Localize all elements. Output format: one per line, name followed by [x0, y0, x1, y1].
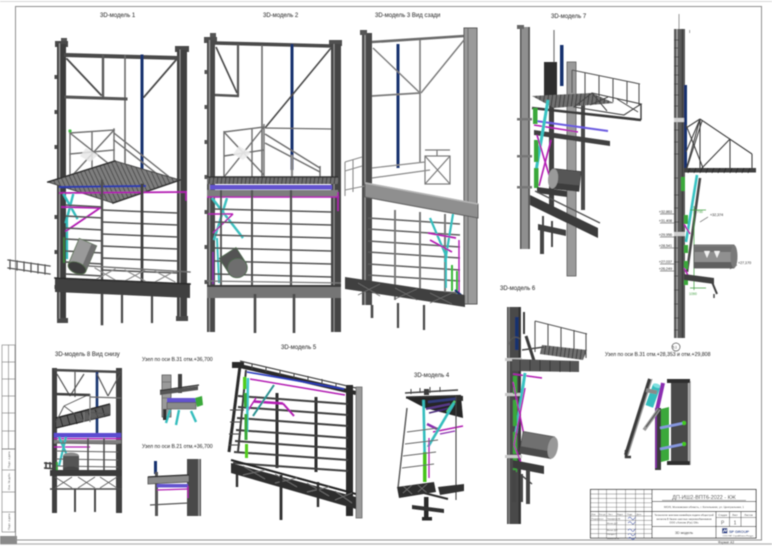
- svg-text:Изм: Изм: [592, 514, 597, 516]
- svg-text:+27,037: +27,037: [659, 260, 672, 264]
- svg-text:Подп. и дата: Подп. и дата: [7, 451, 11, 468]
- svg-text:3D-модель 8 Вид снизу: 3D-модель 8 Вид снизу: [55, 352, 120, 358]
- svg-text:+28,541: +28,541: [659, 244, 672, 248]
- svg-text:Подп. и дата: Подп. и дата: [7, 513, 11, 530]
- svg-text:+29,956: +29,956: [659, 233, 672, 237]
- svg-text:+31,408: +31,408: [659, 219, 672, 223]
- svg-text:+27,170: +27,170: [738, 261, 751, 265]
- svg-text:3D-модель 4: 3D-модель 4: [414, 373, 450, 379]
- svg-text:ООО «Холсим (Рус) СМ»: ООО «Холсим (Рус) СМ»: [669, 522, 699, 525]
- svg-text:ООО ПКГ СтройИнвестРесурс: ООО ПКГ СтройИнвестРесурс: [723, 534, 755, 537]
- svg-text:Кол.уч: Кол.уч: [599, 514, 606, 516]
- svg-text:Лист: Лист: [732, 513, 738, 517]
- svg-text:1090: 1090: [689, 292, 697, 296]
- svg-text:Тимофеев М.: Тимофеев М.: [607, 518, 621, 521]
- svg-text:Рябцев П.: Рябцев П.: [607, 534, 618, 536]
- svg-text:1: 1: [734, 521, 737, 527]
- svg-text:+26,249: +26,249: [659, 267, 672, 271]
- svg-text:3D-модель 1: 3D-модель 1: [100, 13, 136, 19]
- svg-text:Ивлев Д.Р.: Ивлев Д.Р.: [607, 523, 618, 525]
- svg-text:Узел по оси В.31 отм.+36,700: Узел по оси В.31 отм.+36,700: [142, 357, 213, 363]
- svg-text:Ивлев Д.Р.: Ивлев Д.Р.: [607, 530, 618, 532]
- svg-text:3D-модель 7: 3D-модель 7: [551, 14, 587, 20]
- svg-text:SP GROUP: SP GROUP: [729, 530, 749, 534]
- svg-text:МО/6, Московская область, г. К: МО/6, Московская область, г. Котельники,…: [664, 505, 744, 509]
- svg-text:+32,374: +32,374: [710, 213, 723, 217]
- svg-text:Дата: Дата: [637, 514, 643, 516]
- svg-text:Шмайлов А.: Шмайлов А.: [607, 537, 620, 540]
- svg-text:Лист: Лист: [608, 514, 613, 516]
- svg-text:Стадия: Стадия: [718, 513, 727, 517]
- svg-text:Узел по оси В.21 отм.+36,700: Узел по оси В.21 отм.+36,700: [142, 444, 213, 450]
- svg-text:Формат А3: Формат А3: [718, 541, 734, 545]
- svg-text:3D-модель 3 Вид сзади: 3D-модель 3 Вид сзади: [375, 13, 440, 19]
- svg-text:3D-модель 6: 3D-модель 6: [500, 286, 536, 292]
- svg-text:Подп: Подп: [627, 514, 633, 516]
- svg-text:5.1: 5.1: [673, 346, 678, 350]
- svg-text:Разработал: Разработал: [592, 519, 605, 521]
- svg-text:металла В башне шахтных нагрев: металла В башне шахтных нагревообменнико…: [656, 518, 712, 521]
- svg-text:+32,863: +32,863: [659, 210, 672, 214]
- svg-text:Инв. № дубл.: Инв. № дубл.: [7, 472, 11, 490]
- svg-text:790: 790: [697, 210, 703, 214]
- svg-text:3D модель: 3D модель: [675, 531, 693, 535]
- svg-text:№док: №док: [617, 513, 623, 516]
- svg-text:3D-модель 5: 3D-модель 5: [281, 345, 317, 351]
- svg-text:Листов: Листов: [744, 513, 753, 517]
- svg-text:3D-модель 2: 3D-модель 2: [263, 13, 299, 19]
- svg-text:I: I: [689, 29, 690, 34]
- svg-text:Технология монтажа конвейера п: Технология монтажа конвейера подачи обще…: [654, 514, 714, 517]
- svg-text:Узел по оси В.31 отм.+28,353 и: Узел по оси В.31 отм.+28,353 и отм.+29,8…: [605, 352, 711, 358]
